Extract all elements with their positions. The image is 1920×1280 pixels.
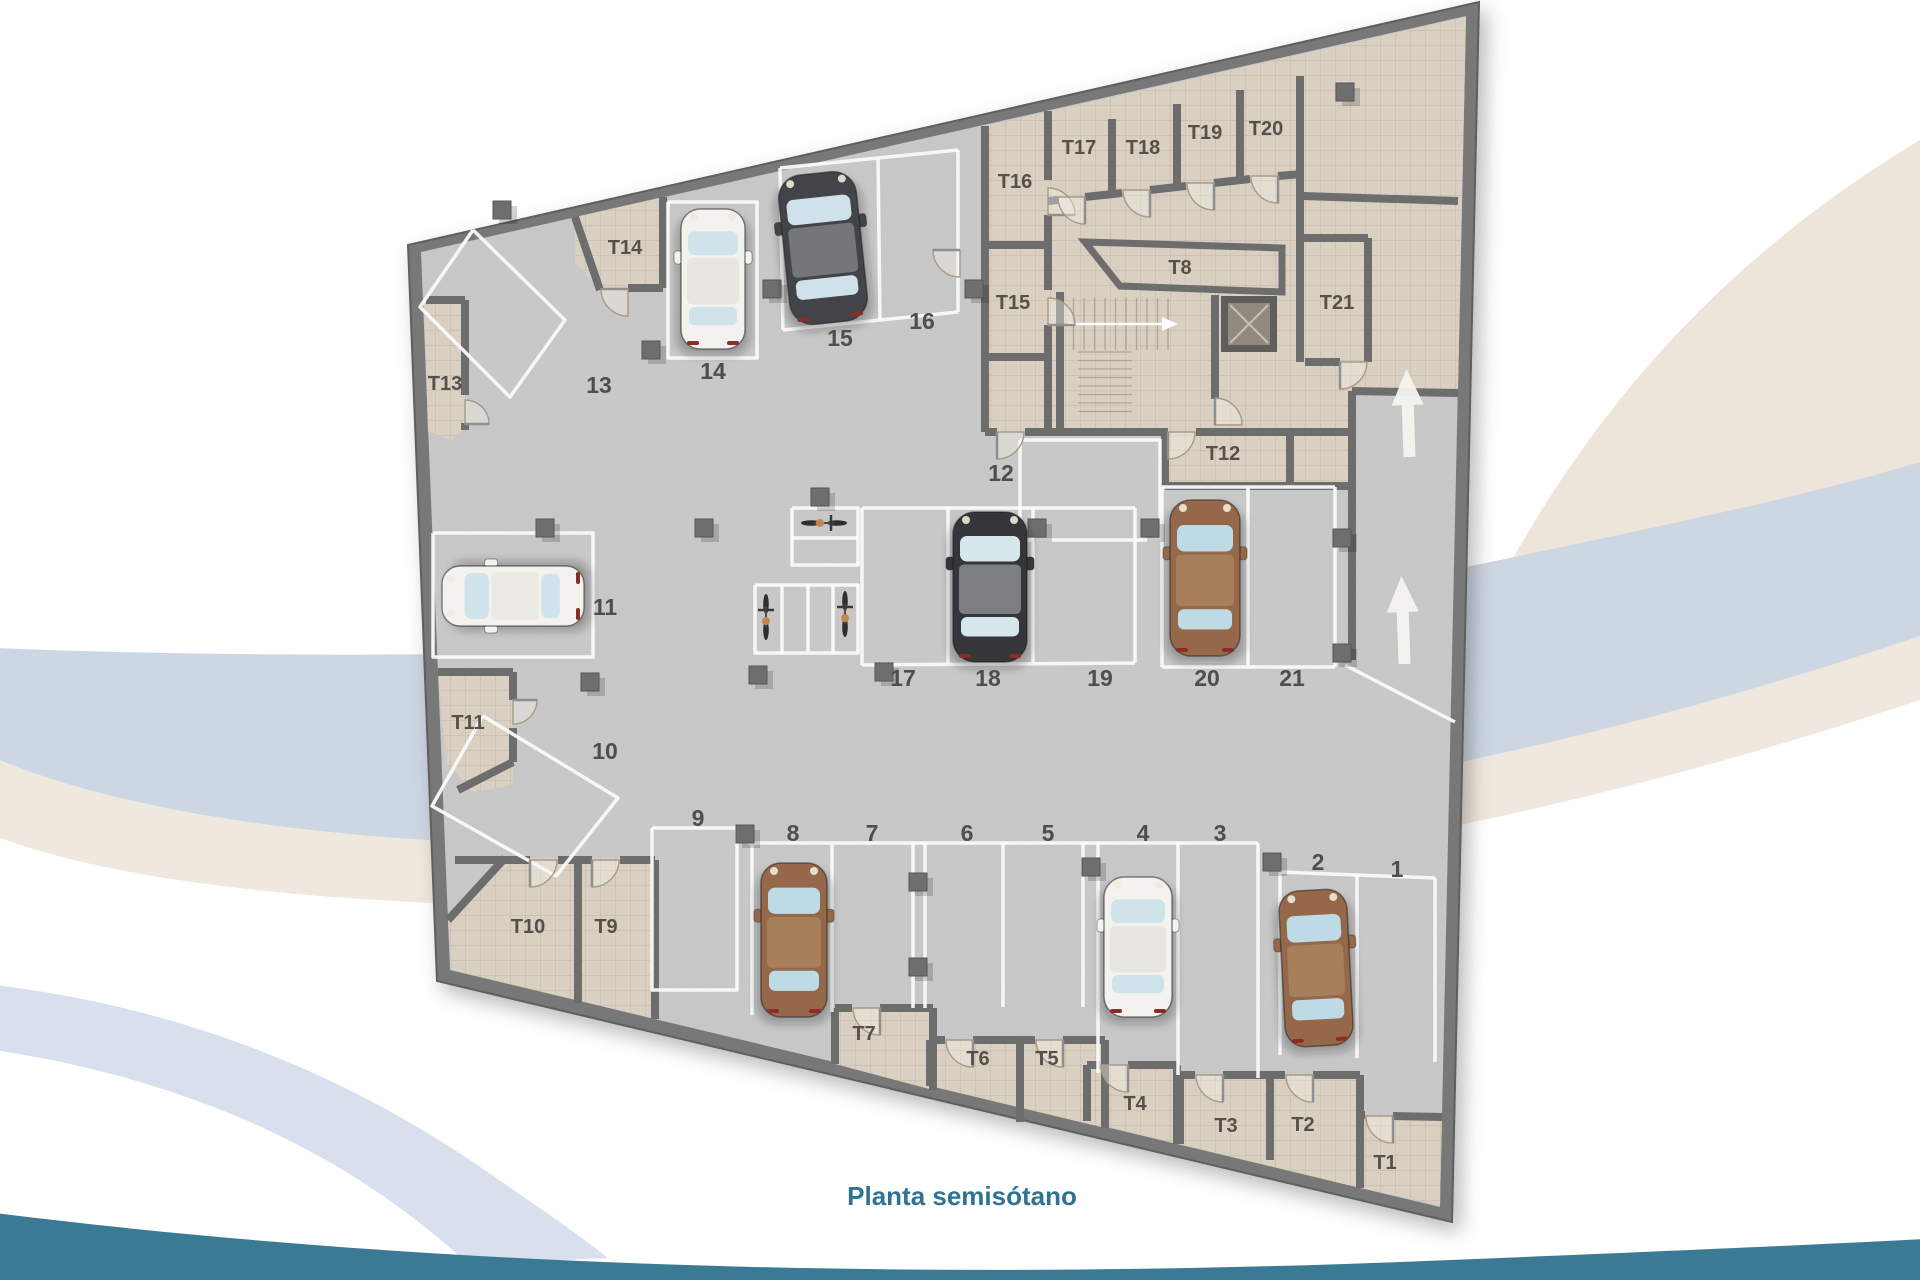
floor-plan-image: 123456789101112131415161718192021T1T2T3T… — [0, 0, 1920, 1280]
storage-room-label-T9: T9 — [594, 916, 617, 938]
teal-bottom-band — [0, 1213, 1920, 1280]
parking-line — [878, 158, 880, 320]
elevator — [1221, 296, 1277, 352]
parking-spot-label-7: 7 — [866, 820, 879, 846]
car-spot-4 — [1097, 877, 1179, 1024]
storage-room-label-T18: T18 — [1126, 137, 1160, 159]
column — [1333, 644, 1351, 662]
parking-spot-label-4: 4 — [1137, 820, 1150, 846]
column — [749, 666, 767, 684]
parking-spot-label-16: 16 — [909, 308, 935, 334]
parking-spot-label-18: 18 — [975, 665, 1001, 691]
column — [1263, 853, 1281, 871]
parking-spot-label-13: 13 — [586, 372, 612, 398]
page-title: Planta semisótano — [847, 1181, 1077, 1211]
column — [1141, 519, 1159, 537]
column — [1082, 858, 1100, 876]
storage-room-label-T7: T7 — [852, 1023, 875, 1045]
column — [493, 201, 511, 219]
car-spot-18 — [946, 512, 1034, 669]
wall — [1393, 1116, 1442, 1117]
storage-room-label-T2: T2 — [1291, 1114, 1314, 1136]
column — [695, 519, 713, 537]
car-spot-14 — [674, 209, 752, 356]
parking-spot-label-5: 5 — [1042, 820, 1055, 846]
column — [811, 488, 829, 506]
storage-room-label-T13: T13 — [428, 373, 462, 395]
parking-spot-label-11: 11 — [593, 594, 618, 620]
column — [1336, 83, 1354, 101]
parking-spot-label-15: 15 — [827, 325, 853, 351]
car-spot-8 — [754, 863, 834, 1024]
storage-room-label-T3: T3 — [1214, 1115, 1237, 1137]
parking-spot-label-1: 1 — [1391, 856, 1404, 882]
parking-spot-label-21: 21 — [1279, 665, 1305, 691]
car-spot-20 — [1163, 500, 1247, 663]
storage-room-label-T20: T20 — [1249, 118, 1283, 140]
storage-room-label-T6: T6 — [966, 1048, 989, 1070]
parking-spot-label-2: 2 — [1312, 849, 1325, 875]
wall — [1085, 193, 1122, 197]
storage-room-label-T15: T15 — [996, 292, 1030, 314]
page: 123456789101112131415161718192021T1T2T3T… — [0, 0, 1920, 1280]
storage-room-label-T21: T21 — [1320, 292, 1354, 314]
storage-room-label-T10: T10 — [511, 916, 545, 938]
column — [763, 280, 781, 298]
storage-room-label-T11: T11 — [451, 712, 484, 734]
column — [909, 958, 927, 976]
column — [581, 673, 599, 691]
column — [736, 825, 754, 843]
parking-spot-label-6: 6 — [961, 820, 974, 846]
tile-grid — [424, 300, 465, 440]
car-spot-2 — [1271, 888, 1361, 1055]
parking-spot-label-10: 10 — [592, 738, 618, 764]
parking-spot-label-14: 14 — [700, 358, 726, 384]
storage-room-label-T12: T12 — [1206, 443, 1240, 465]
parking-spot-label-3: 3 — [1214, 820, 1227, 846]
parking-spot-label-8: 8 — [787, 820, 800, 846]
car-spot-11 — [442, 559, 591, 633]
column — [642, 341, 660, 359]
parking-spot-label-9: 9 — [692, 805, 705, 831]
column — [965, 280, 983, 298]
parking-spot-label-20: 20 — [1194, 665, 1220, 691]
storage-room-label-T1: T1 — [1373, 1152, 1396, 1174]
storage-room-label-T8: T8 — [1168, 257, 1191, 279]
column — [1333, 529, 1351, 547]
storage-room-label-T17: T17 — [1062, 137, 1096, 159]
parking-spot-label-17: 17 — [890, 665, 916, 691]
parking-spot-label-19: 19 — [1087, 665, 1113, 691]
storage-room-label-T4: T4 — [1123, 1093, 1147, 1115]
storage-room-label-T14: T14 — [608, 237, 643, 259]
column — [536, 519, 554, 537]
swoosh-lightblue-bottom-left — [0, 985, 608, 1264]
storage-room-label-T16: T16 — [998, 171, 1032, 193]
storage-room-label-T19: T19 — [1188, 122, 1222, 144]
storage-room-label-T5: T5 — [1035, 1048, 1058, 1070]
wall — [1214, 179, 1250, 183]
column — [909, 873, 927, 891]
wall — [1302, 196, 1458, 201]
parking-spot-label-12: 12 — [988, 460, 1014, 486]
